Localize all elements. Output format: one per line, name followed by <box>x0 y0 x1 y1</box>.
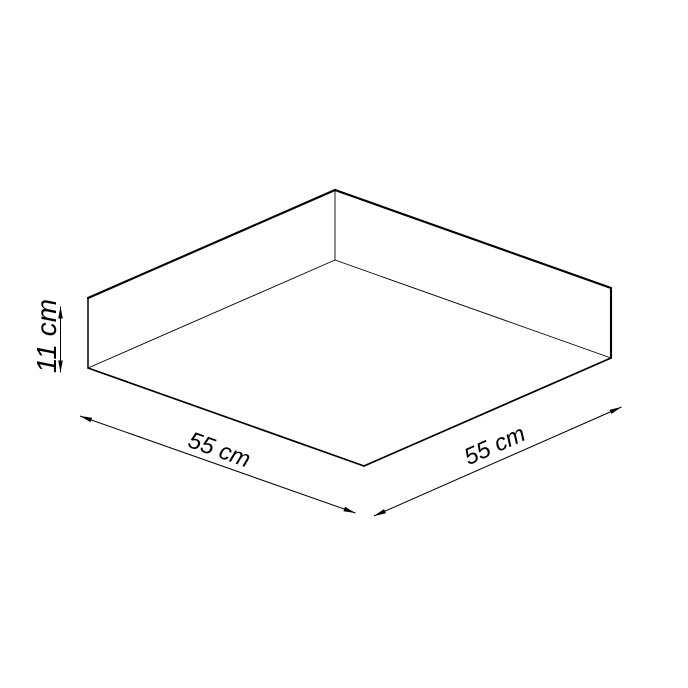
svg-text:11 cm: 11 cm <box>31 299 62 373</box>
